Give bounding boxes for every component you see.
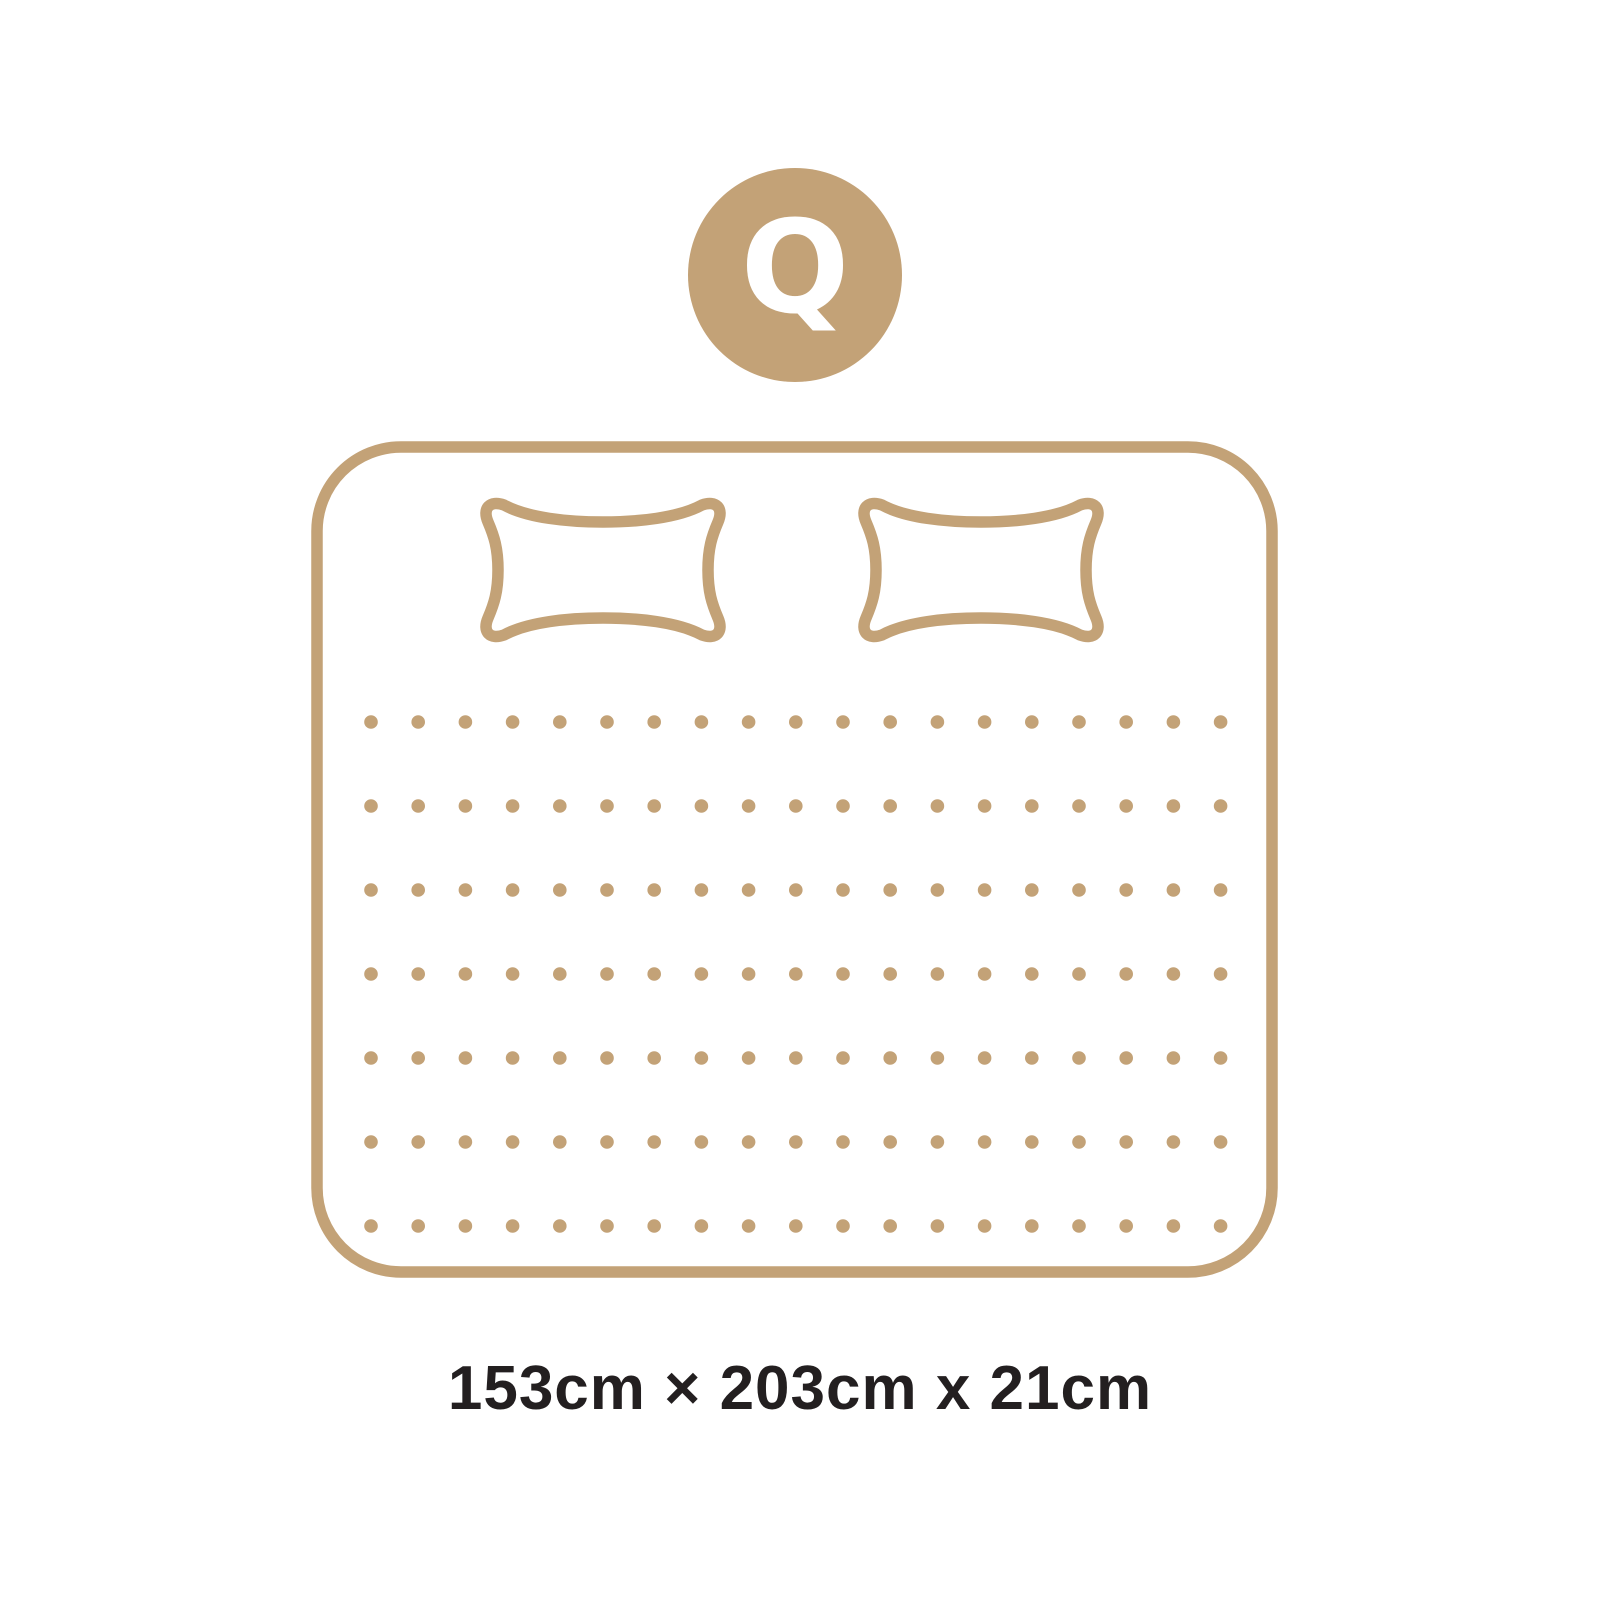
mattress-dot — [1167, 799, 1181, 813]
mattress-dot — [364, 1135, 378, 1149]
mattress-dot — [742, 1051, 756, 1065]
mattress-dot — [506, 715, 520, 729]
mattress-dot — [1119, 1051, 1133, 1065]
mattress-dot — [789, 715, 803, 729]
mattress-dot — [1072, 1135, 1086, 1149]
mattress-dot — [553, 967, 567, 981]
mattress-dot — [1167, 1135, 1181, 1149]
mattress-dot — [1025, 967, 1039, 981]
mattress-dot — [931, 1135, 945, 1149]
mattress-dot — [364, 967, 378, 981]
mattress-dot — [364, 1219, 378, 1233]
mattress-dot — [459, 715, 473, 729]
mattress-dot — [459, 1219, 473, 1233]
mattress-dot — [459, 1135, 473, 1149]
mattress-dot — [931, 715, 945, 729]
mattress-dot — [931, 967, 945, 981]
mattress-dot — [931, 799, 945, 813]
mattress-dot — [789, 967, 803, 981]
mattress-dot — [695, 967, 709, 981]
mattress-dot — [695, 883, 709, 897]
mattress-dot — [742, 1135, 756, 1149]
mattress-dot — [695, 799, 709, 813]
mattress-dot — [978, 967, 992, 981]
mattress-dot — [1214, 1135, 1228, 1149]
mattress-dot — [553, 715, 567, 729]
mattress-dot — [1167, 883, 1181, 897]
mattress-dot — [1119, 967, 1133, 981]
mattress-dot — [789, 883, 803, 897]
mattress-dot — [1119, 1135, 1133, 1149]
mattress-dot — [647, 715, 661, 729]
mattress-dot — [647, 967, 661, 981]
mattress-dot — [1167, 715, 1181, 729]
mattress-dot — [1214, 1051, 1228, 1065]
mattress-dot — [459, 1051, 473, 1065]
mattress-dot — [647, 1135, 661, 1149]
mattress-dot — [364, 715, 378, 729]
mattress-dot — [364, 1051, 378, 1065]
mattress-dot — [695, 1135, 709, 1149]
mattress-dot — [364, 799, 378, 813]
mattress-dot — [1214, 715, 1228, 729]
mattress-dot — [600, 1135, 614, 1149]
mattress-dot — [883, 799, 897, 813]
mattress-dot — [1072, 799, 1086, 813]
mattress-dot — [978, 1219, 992, 1233]
mattress-dot — [883, 1135, 897, 1149]
mattress-dot — [1072, 1051, 1086, 1065]
mattress-dot — [742, 715, 756, 729]
mattress-dot — [978, 883, 992, 897]
mattress-dot — [1214, 1219, 1228, 1233]
mattress-dot — [600, 883, 614, 897]
mattress-dot — [742, 883, 756, 897]
mattress-dot — [789, 1135, 803, 1149]
mattress-dot — [1072, 883, 1086, 897]
mattress-dot — [1119, 883, 1133, 897]
mattress-dot — [742, 967, 756, 981]
mattress-dot — [411, 799, 425, 813]
mattress-dot — [883, 967, 897, 981]
mattress-dot — [1167, 1219, 1181, 1233]
mattress-dot — [836, 799, 850, 813]
pillow-right-icon — [864, 504, 1098, 637]
mattress-dot — [459, 883, 473, 897]
mattress-dot — [1167, 967, 1181, 981]
mattress-dot — [600, 715, 614, 729]
mattress-dot — [836, 967, 850, 981]
mattress-dot — [600, 1051, 614, 1065]
size-diagram-canvas: Q 153cm × 203cm x 21cm — [0, 0, 1600, 1600]
mattress-dot — [600, 799, 614, 813]
mattress-dot — [883, 883, 897, 897]
mattress-dot — [883, 1051, 897, 1065]
mattress-dot — [789, 1219, 803, 1233]
mattress-dot — [411, 715, 425, 729]
mattress-dot — [553, 1135, 567, 1149]
mattress-dot — [411, 1219, 425, 1233]
mattress-dot — [1025, 1219, 1039, 1233]
mattress-dot — [836, 715, 850, 729]
mattress-dot — [553, 1051, 567, 1065]
mattress-dot — [789, 799, 803, 813]
mattress-dot — [836, 1051, 850, 1065]
mattress-dot — [553, 799, 567, 813]
mattress-dot — [695, 715, 709, 729]
mattress-dot — [553, 883, 567, 897]
mattress-dot — [789, 1051, 803, 1065]
mattress-dot — [1072, 1219, 1086, 1233]
mattress-dot — [1025, 1051, 1039, 1065]
mattress-dot — [836, 883, 850, 897]
mattress-dot — [1119, 1219, 1133, 1233]
mattress-dot — [506, 883, 520, 897]
mattress-dot — [506, 1219, 520, 1233]
mattress-dot — [931, 883, 945, 897]
mattress-dot — [1214, 799, 1228, 813]
mattress-dot — [1025, 1135, 1039, 1149]
mattress-dot — [1214, 967, 1228, 981]
mattress-dot — [1025, 799, 1039, 813]
mattress-dot — [459, 967, 473, 981]
mattress-dot — [978, 715, 992, 729]
mattress-dot — [600, 1219, 614, 1233]
mattress-dot — [883, 715, 897, 729]
mattress-dot — [506, 799, 520, 813]
mattress-dot — [1214, 883, 1228, 897]
mattress-dot — [742, 799, 756, 813]
mattress-dot — [978, 1135, 992, 1149]
mattress-dot — [883, 1219, 897, 1233]
mattress-dot — [695, 1219, 709, 1233]
size-caption: 153cm × 203cm x 21cm — [0, 1358, 1600, 1420]
mattress-dot — [506, 967, 520, 981]
mattress-dot — [647, 1051, 661, 1065]
mattress-dot — [978, 1051, 992, 1065]
mattress-dot — [1119, 799, 1133, 813]
mattress-dot — [459, 799, 473, 813]
mattress-dot — [600, 967, 614, 981]
dot-grid — [364, 715, 1227, 1233]
mattress-dot — [836, 1219, 850, 1233]
mattress-dot — [411, 1051, 425, 1065]
mattress-dot — [364, 883, 378, 897]
mattress-dot — [411, 883, 425, 897]
mattress-dot — [647, 1219, 661, 1233]
mattress-dot — [1119, 715, 1133, 729]
mattress-dot — [1072, 715, 1086, 729]
mattress-dot — [506, 1135, 520, 1149]
mattress-dot — [1167, 1051, 1181, 1065]
mattress-dot — [506, 1051, 520, 1065]
mattress-dot — [411, 967, 425, 981]
mattress-dot — [931, 1051, 945, 1065]
mattress-dot — [1025, 883, 1039, 897]
mattress-dot — [647, 883, 661, 897]
mattress-dot — [978, 799, 992, 813]
mattress-dot — [836, 1135, 850, 1149]
mattress-dot — [1072, 967, 1086, 981]
pillow-left-icon — [486, 504, 720, 637]
mattress-dot — [695, 1051, 709, 1065]
mattress-dot — [553, 1219, 567, 1233]
mattress-dot — [411, 1135, 425, 1149]
mattress-dot — [931, 1219, 945, 1233]
mattress-dot — [647, 799, 661, 813]
mattress-dot — [742, 1219, 756, 1233]
mattress-dot — [1025, 715, 1039, 729]
